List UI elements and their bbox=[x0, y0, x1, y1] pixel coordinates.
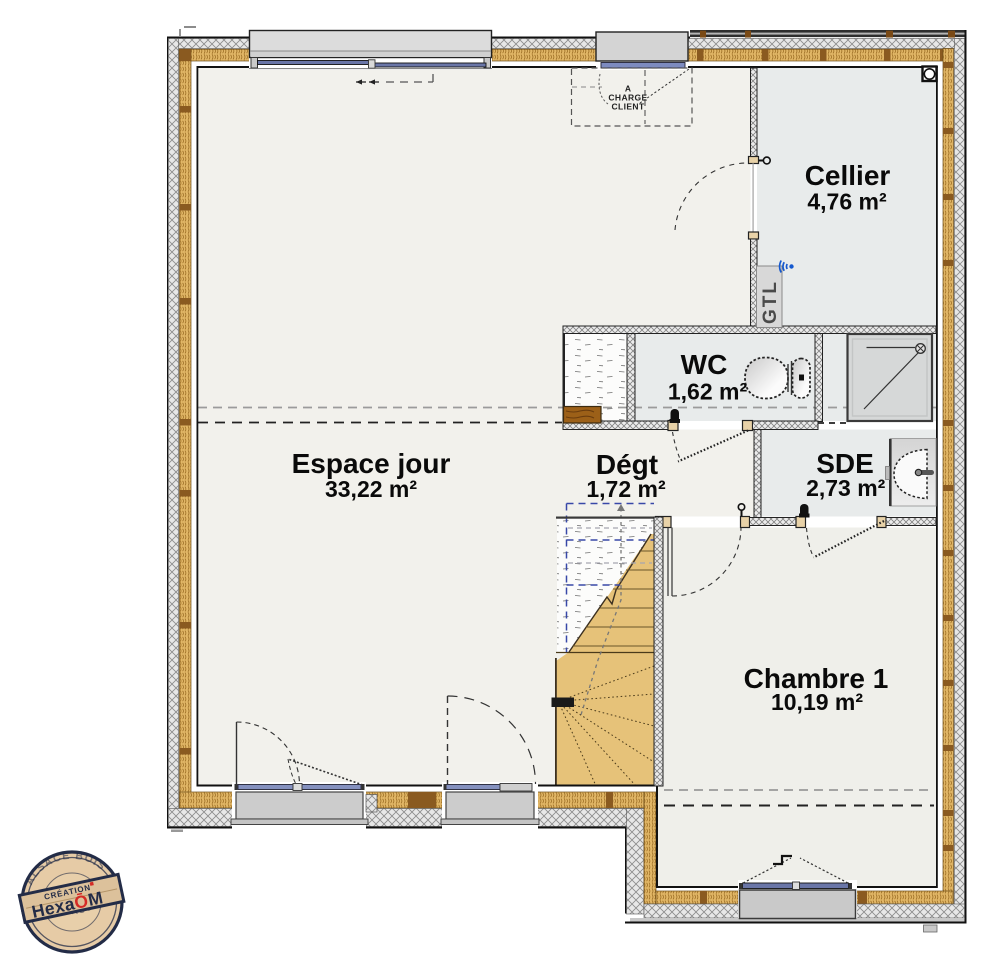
svg-text:1,62 m²: 1,62 m² bbox=[668, 379, 748, 405]
svg-text:33,22 m²: 33,22 m² bbox=[325, 476, 417, 502]
svg-text:CLIENT: CLIENT bbox=[611, 102, 645, 112]
svg-text:Espace jour: Espace jour bbox=[292, 448, 451, 479]
svg-text:4,76 m²: 4,76 m² bbox=[807, 189, 887, 215]
svg-text:Cellier: Cellier bbox=[805, 160, 891, 191]
svg-text:2,73 m²: 2,73 m² bbox=[806, 475, 886, 501]
svg-text:WC: WC bbox=[681, 349, 728, 380]
svg-text:GTL: GTL bbox=[760, 280, 781, 324]
svg-text:10,19 m²: 10,19 m² bbox=[771, 689, 863, 715]
svg-text:1,72 m²: 1,72 m² bbox=[586, 476, 666, 502]
